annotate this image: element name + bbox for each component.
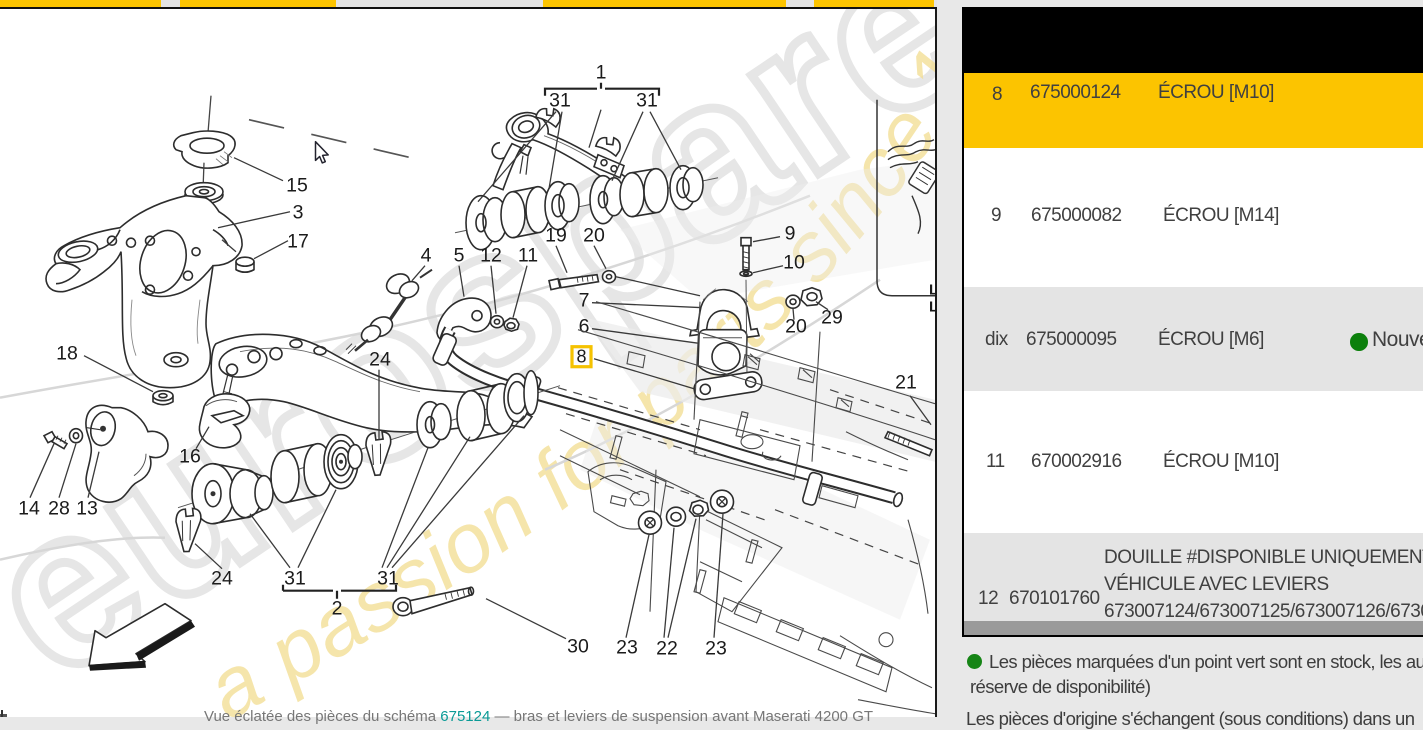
svg-text:16: 16 xyxy=(179,446,201,468)
svg-text:30: 30 xyxy=(567,636,589,658)
svg-text:L: L xyxy=(929,282,935,299)
svg-text:14: 14 xyxy=(18,498,40,520)
svg-text:10: 10 xyxy=(783,252,805,274)
svg-text:L: L xyxy=(929,299,935,316)
svg-text:6: 6 xyxy=(579,316,590,338)
svg-text:3: 3 xyxy=(293,202,304,224)
svg-text:7: 7 xyxy=(579,290,590,312)
svg-text:9: 9 xyxy=(785,223,796,245)
svg-text:12: 12 xyxy=(480,245,502,267)
svg-text:24: 24 xyxy=(211,568,233,590)
svg-text:23: 23 xyxy=(705,638,727,660)
svg-text:29: 29 xyxy=(821,307,843,329)
svg-text:15: 15 xyxy=(286,175,308,197)
svg-text:28: 28 xyxy=(48,498,70,520)
svg-text:20: 20 xyxy=(785,316,807,338)
svg-text:23: 23 xyxy=(616,637,638,659)
svg-text:5: 5 xyxy=(454,245,465,267)
svg-text:20: 20 xyxy=(583,225,605,247)
svg-text:2: 2 xyxy=(332,598,343,620)
svg-text:31: 31 xyxy=(549,90,571,112)
svg-text:1: 1 xyxy=(596,62,607,84)
svg-text:17: 17 xyxy=(287,231,309,253)
svg-text:13: 13 xyxy=(76,498,98,520)
svg-text:24: 24 xyxy=(369,349,391,371)
svg-text:19: 19 xyxy=(545,225,567,247)
svg-text:21: 21 xyxy=(895,372,917,394)
svg-text:31: 31 xyxy=(636,90,658,112)
svg-text:11: 11 xyxy=(518,245,538,267)
svg-text:8: 8 xyxy=(576,347,586,367)
svg-text:18: 18 xyxy=(56,343,78,365)
svg-text:22: 22 xyxy=(656,638,678,660)
svg-text:4: 4 xyxy=(421,245,432,267)
svg-text:31: 31 xyxy=(284,568,306,590)
